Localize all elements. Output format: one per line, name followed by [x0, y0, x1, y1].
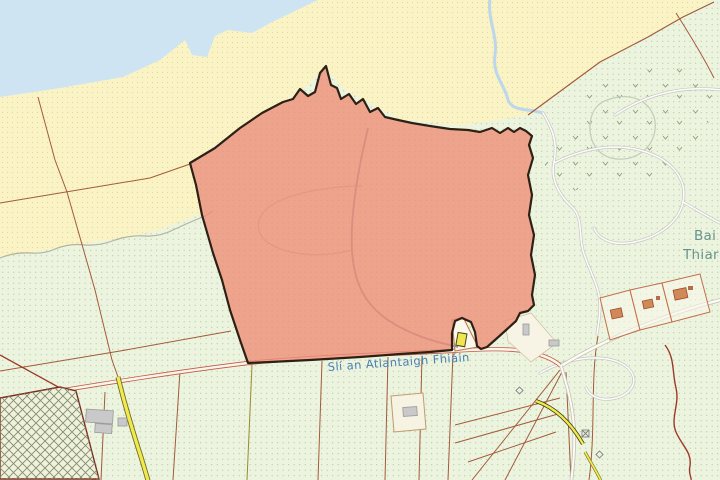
building [86, 409, 114, 424]
building [549, 340, 559, 346]
building [642, 299, 653, 309]
building [403, 407, 418, 417]
townland-label-line2: Thiar [682, 247, 719, 263]
building [95, 423, 113, 433]
map-canvas[interactable]: Slí an Atlantaigh Fhiáin Bai Thiar [0, 0, 720, 480]
building [610, 308, 623, 319]
building [656, 296, 660, 300]
building [673, 288, 688, 300]
building [118, 418, 127, 426]
townland-label-line1: Bai [694, 228, 716, 244]
building [523, 324, 529, 335]
map-root: Slí an Atlantaigh Fhiáin Bai Thiar [0, 0, 720, 480]
building [688, 286, 693, 290]
building [456, 332, 467, 346]
